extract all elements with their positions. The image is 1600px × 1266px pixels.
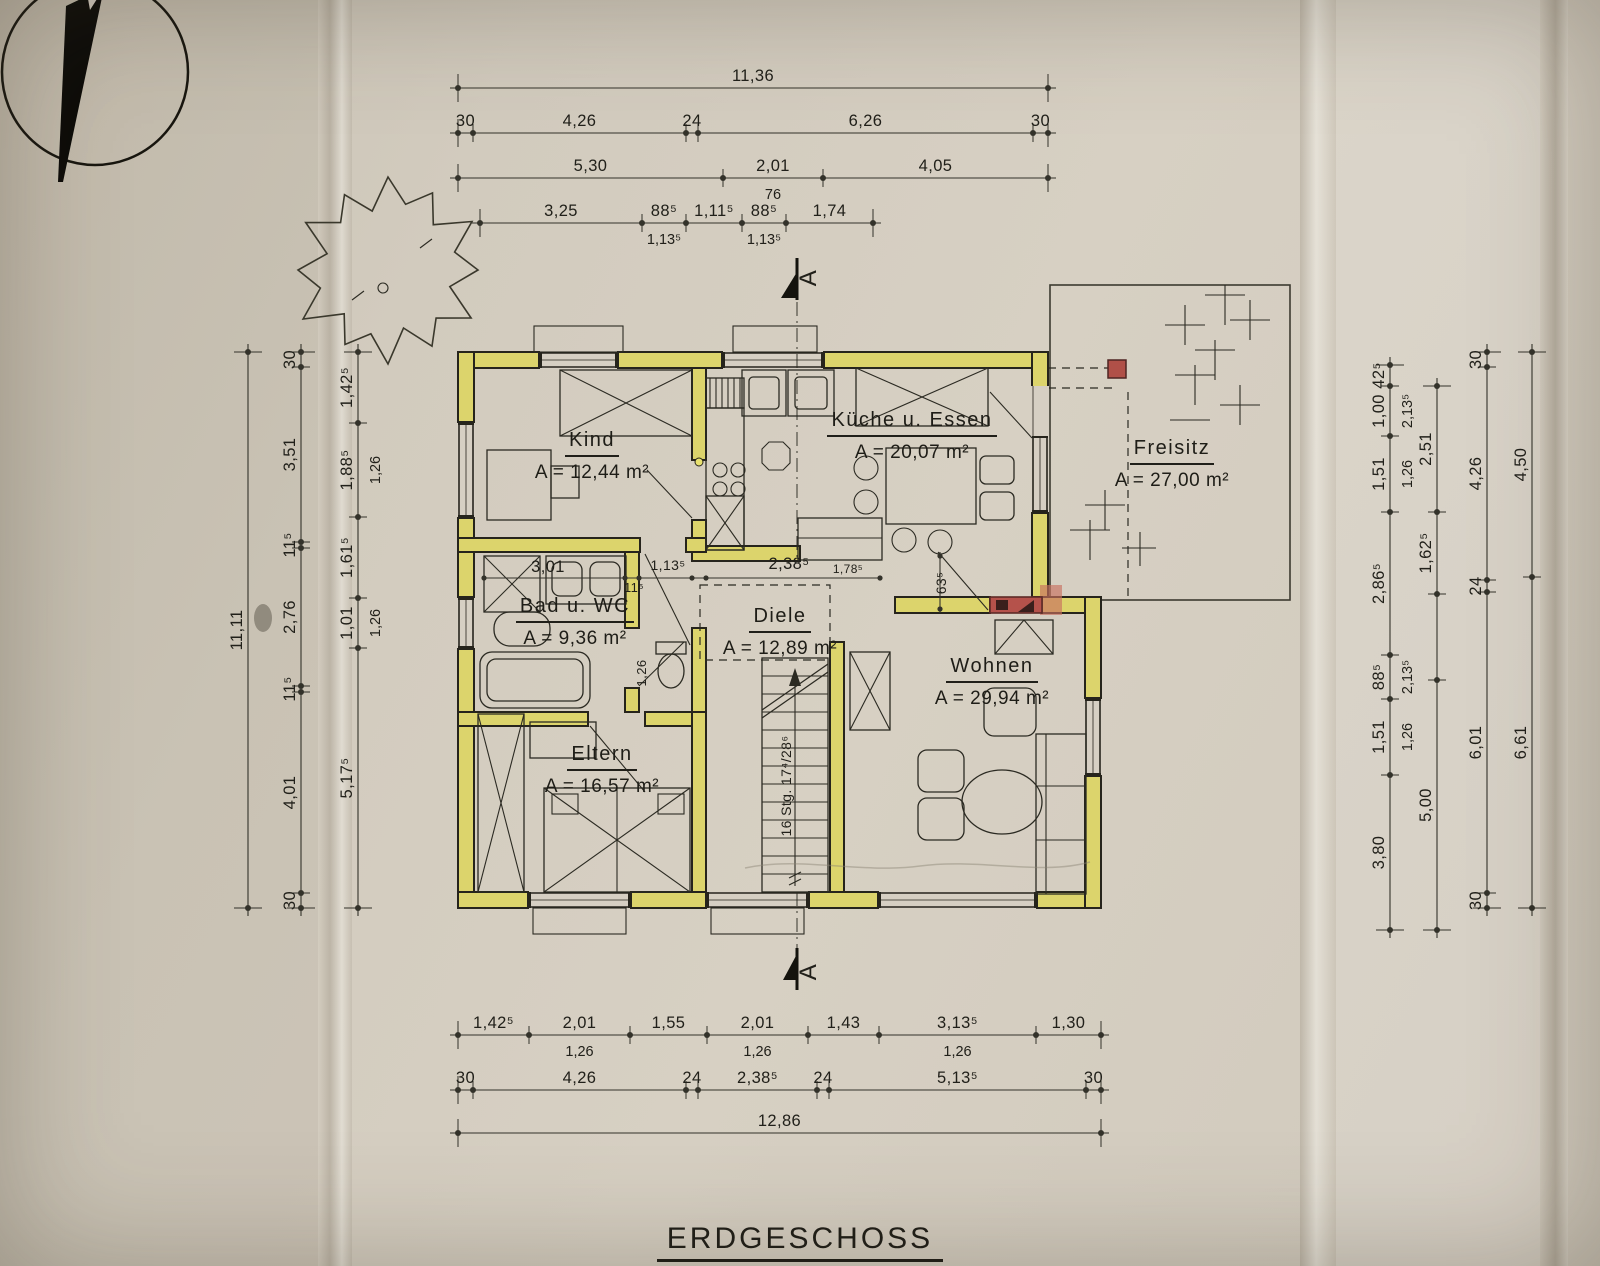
- dimension-sublabel: 2,13⁵: [1400, 660, 1416, 694]
- dimension-label: 16 Stg. 17⁴/28⁶: [778, 735, 794, 836]
- dimension-label: 1,42⁵: [473, 1014, 514, 1032]
- dimension-label: 24: [682, 112, 701, 130]
- dimension-label: 3,51: [281, 438, 299, 472]
- dimension-sublabel: 1,13⁵: [747, 232, 781, 248]
- room-area: A = 12,89 m²: [685, 637, 875, 661]
- dimension-label: 1,61⁵: [338, 537, 356, 578]
- dim-chain-right-overall: 4,506,61: [1512, 344, 1546, 916]
- dimension-label: 3,01: [531, 558, 565, 576]
- section-letter: A: [795, 270, 822, 286]
- paving-hatch: [1070, 285, 1270, 566]
- room-label-kueche: Küche u. Essen A = 20,07 m²: [817, 408, 1007, 465]
- dimension-sublabel: 2,13⁵: [1400, 394, 1416, 428]
- dimension-sublabel: 1,26: [743, 1044, 771, 1060]
- staircase: [762, 658, 828, 892]
- dimension-label: 1,88⁵: [338, 450, 356, 491]
- dimension-label: 1,00: [1370, 394, 1388, 428]
- dimension-label: 30: [456, 112, 475, 130]
- dimension-label: 30: [1467, 891, 1485, 910]
- dimension-label: 3,80: [1370, 836, 1388, 870]
- dimension-label: 4,01: [281, 776, 299, 810]
- dim-chain-right-openings: 42⁵1,002,13⁵1,511,262,86⁵88⁵2,13⁵1,511,2…: [1370, 357, 1416, 938]
- dimension-label: 4,26: [563, 112, 597, 130]
- dimension-sublabel: 1,13⁵: [647, 232, 681, 248]
- dimension-label: 30: [281, 350, 299, 369]
- dimension-label: 1,11⁵: [694, 202, 734, 220]
- dimension-label: 2,01: [741, 1014, 775, 1032]
- dimension-label: 5,30: [574, 157, 608, 175]
- dimension-label: 1,78⁵: [833, 562, 863, 576]
- dimension-label: 24: [1467, 576, 1485, 595]
- room-name: Küche u. Essen: [827, 408, 996, 437]
- room-name: Freisitz: [1130, 436, 1214, 465]
- dimension-label: 5,13⁵: [937, 1069, 978, 1087]
- dimension-label: 2,01: [756, 157, 790, 175]
- dimension-label: 4,26: [1467, 457, 1485, 491]
- dimension-label: 24: [813, 1069, 832, 1087]
- dimension-sublabel: 1,26: [943, 1044, 971, 1060]
- front-door: [990, 585, 1062, 654]
- room-label-wohnen: Wohnen A = 29,94 m²: [897, 654, 1087, 711]
- dimension-sublabel: 1,26: [368, 456, 384, 484]
- dimension-label: 30: [281, 891, 299, 910]
- dimension-label: 30: [1084, 1069, 1103, 1087]
- dimension-label: 1,43: [827, 1014, 861, 1032]
- shutter-box: [534, 326, 623, 352]
- shutter-box: [533, 908, 626, 934]
- dim-chain-top-row3: 5,302,01764,05: [450, 157, 1056, 203]
- terrace-post: [1108, 360, 1126, 378]
- dimension-label: 88⁵: [751, 202, 777, 220]
- dimension-sublabel: 1,26: [1400, 460, 1416, 488]
- dim-chain-bottom-overall: 12,86: [450, 1112, 1109, 1147]
- dimension-label: 6,01: [1467, 726, 1485, 760]
- dimension-label: 5,00: [1417, 788, 1435, 822]
- dimension-label: 24: [682, 1069, 701, 1087]
- dimension-label: 1,01: [338, 606, 356, 640]
- room-label-bad: Bad u. WC A = 9,36 m²: [480, 594, 670, 651]
- dimension-label: 4,05: [919, 157, 953, 175]
- room-area: A = 27,00 m²: [1077, 469, 1267, 493]
- dimension-label: 1,51: [1370, 457, 1388, 491]
- room-name: Eltern: [567, 742, 636, 771]
- dimension-label: 3,25: [544, 202, 578, 220]
- dimension-label: 63⁵: [933, 572, 949, 595]
- dimension-sublabel: 1,26: [1400, 723, 1416, 751]
- dimension-label: 6,61: [1512, 726, 1530, 760]
- room-area: A = 29,94 m²: [897, 687, 1087, 711]
- north-arrow-compass-icon: [2, 0, 188, 182]
- dimension-label: 1,42⁵: [338, 367, 356, 408]
- room-area: A = 20,07 m²: [817, 441, 1007, 465]
- dim-chain-top-row4: 3,2588⁵1,13⁵1,11⁵88⁵1,13⁵1,74: [472, 202, 881, 248]
- room-area: A = 16,57 m²: [507, 775, 697, 799]
- dimension-label: 12,86: [758, 1112, 801, 1130]
- dim-chain-right-inner: 2,511,62⁵5,00: [1417, 378, 1451, 938]
- dimension-label: 1,55: [652, 1014, 686, 1032]
- room-area: A = 9,36 m²: [480, 627, 670, 651]
- dimension-label: 2,86⁵: [1370, 563, 1388, 604]
- dim-chain-bottom-openings: 1,42⁵2,011,261,552,011,261,433,13⁵1,261,…: [450, 1014, 1109, 1060]
- shutter-box: [711, 908, 804, 934]
- sheet-title-text: ERDGESCHOSS: [657, 1222, 943, 1262]
- room-label-diele: Diele A = 12,89 m²: [685, 604, 875, 661]
- dim-chain-top-main: 304,26246,2630: [450, 112, 1056, 147]
- dimension-label: 2,51: [1417, 432, 1435, 466]
- room-name: Wohnen: [946, 654, 1037, 683]
- dim-chain-top-overall: 11,36: [450, 67, 1056, 102]
- dimension-label: 3,13⁵: [937, 1014, 978, 1032]
- dim-chain-left-main: 303,5111⁵2,7611⁵4,0130: [281, 344, 315, 916]
- dimension-label: 1,62⁵: [1417, 533, 1435, 574]
- room-name: Diele: [749, 604, 810, 633]
- room-label-eltern: Eltern A = 16,57 m²: [507, 742, 697, 799]
- dimension-label: 1,51: [1370, 720, 1388, 754]
- dimension-label: 4,26: [563, 1069, 597, 1087]
- dimension-sublabel: 1,26: [565, 1044, 593, 1060]
- sheet-title: ERDGESCHOSS: [600, 1222, 1000, 1262]
- dimension-label: 2,38⁵: [769, 555, 810, 573]
- room-label-freisitz: Freisitz A = 27,00 m²: [1077, 436, 1267, 493]
- dimension-annotations: 11,36304,26246,26305,302,01764,053,2588⁵…: [228, 67, 1546, 1147]
- dim-chain-right-main: 304,26246,0130: [1467, 344, 1501, 916]
- dimension-label: 42⁵: [1370, 362, 1388, 388]
- room-label-kind: Kind A = 12,44 m²: [497, 428, 687, 485]
- dim-chain-bottom-main: 304,26242,38⁵245,13⁵30: [450, 1069, 1109, 1104]
- dimension-label: 11,36: [732, 67, 774, 85]
- dimension-label: 6,26: [849, 112, 883, 130]
- dimension-label: 11⁵: [624, 580, 644, 595]
- floor-plan-sheet: AA 11,36304,26246,26305,302,01764,053,25…: [0, 0, 1600, 1266]
- dim-chain-left-openings: 1,42⁵1,88⁵1,261,61⁵1,011,265,17⁵: [338, 344, 384, 916]
- dimension-sublabel: 76: [765, 187, 781, 203]
- dimension-label: 2,76: [281, 600, 299, 634]
- dimension-label: 11,11: [228, 610, 246, 651]
- entrance-step: [995, 620, 1053, 654]
- dimension-label: 1,30: [1052, 1014, 1086, 1032]
- dimension-label: 30: [456, 1069, 475, 1087]
- dimension-label: 30: [1467, 350, 1485, 369]
- dimension-sublabel: 1,26: [368, 609, 384, 637]
- dimension-label: 88⁵: [651, 202, 677, 220]
- dimension-label: 1,26: [634, 660, 649, 687]
- dimension-label: 88⁵: [1370, 664, 1388, 690]
- shutter-box: [733, 326, 817, 352]
- dimension-label: 1,13⁵: [650, 557, 685, 573]
- dimension-label: 11⁵: [281, 676, 299, 701]
- dimension-label: 11⁵: [281, 532, 299, 557]
- room-name: Bad u. WC: [516, 594, 634, 623]
- section-letter: A: [795, 964, 822, 980]
- room-name: Kind: [565, 428, 619, 457]
- dimension-label: 5,17⁵: [338, 758, 356, 799]
- dimension-label: 1,74: [813, 202, 847, 220]
- dimension-label: 30: [1031, 112, 1050, 130]
- dimension-label: 4,50: [1512, 448, 1530, 482]
- dimension-label: 2,38⁵: [737, 1069, 778, 1087]
- dimension-label: 2,01: [563, 1014, 597, 1032]
- room-area: A = 12,44 m²: [497, 461, 687, 485]
- dim-chain-left-overall: 11,11: [228, 344, 262, 916]
- tree-sketch: [298, 177, 478, 364]
